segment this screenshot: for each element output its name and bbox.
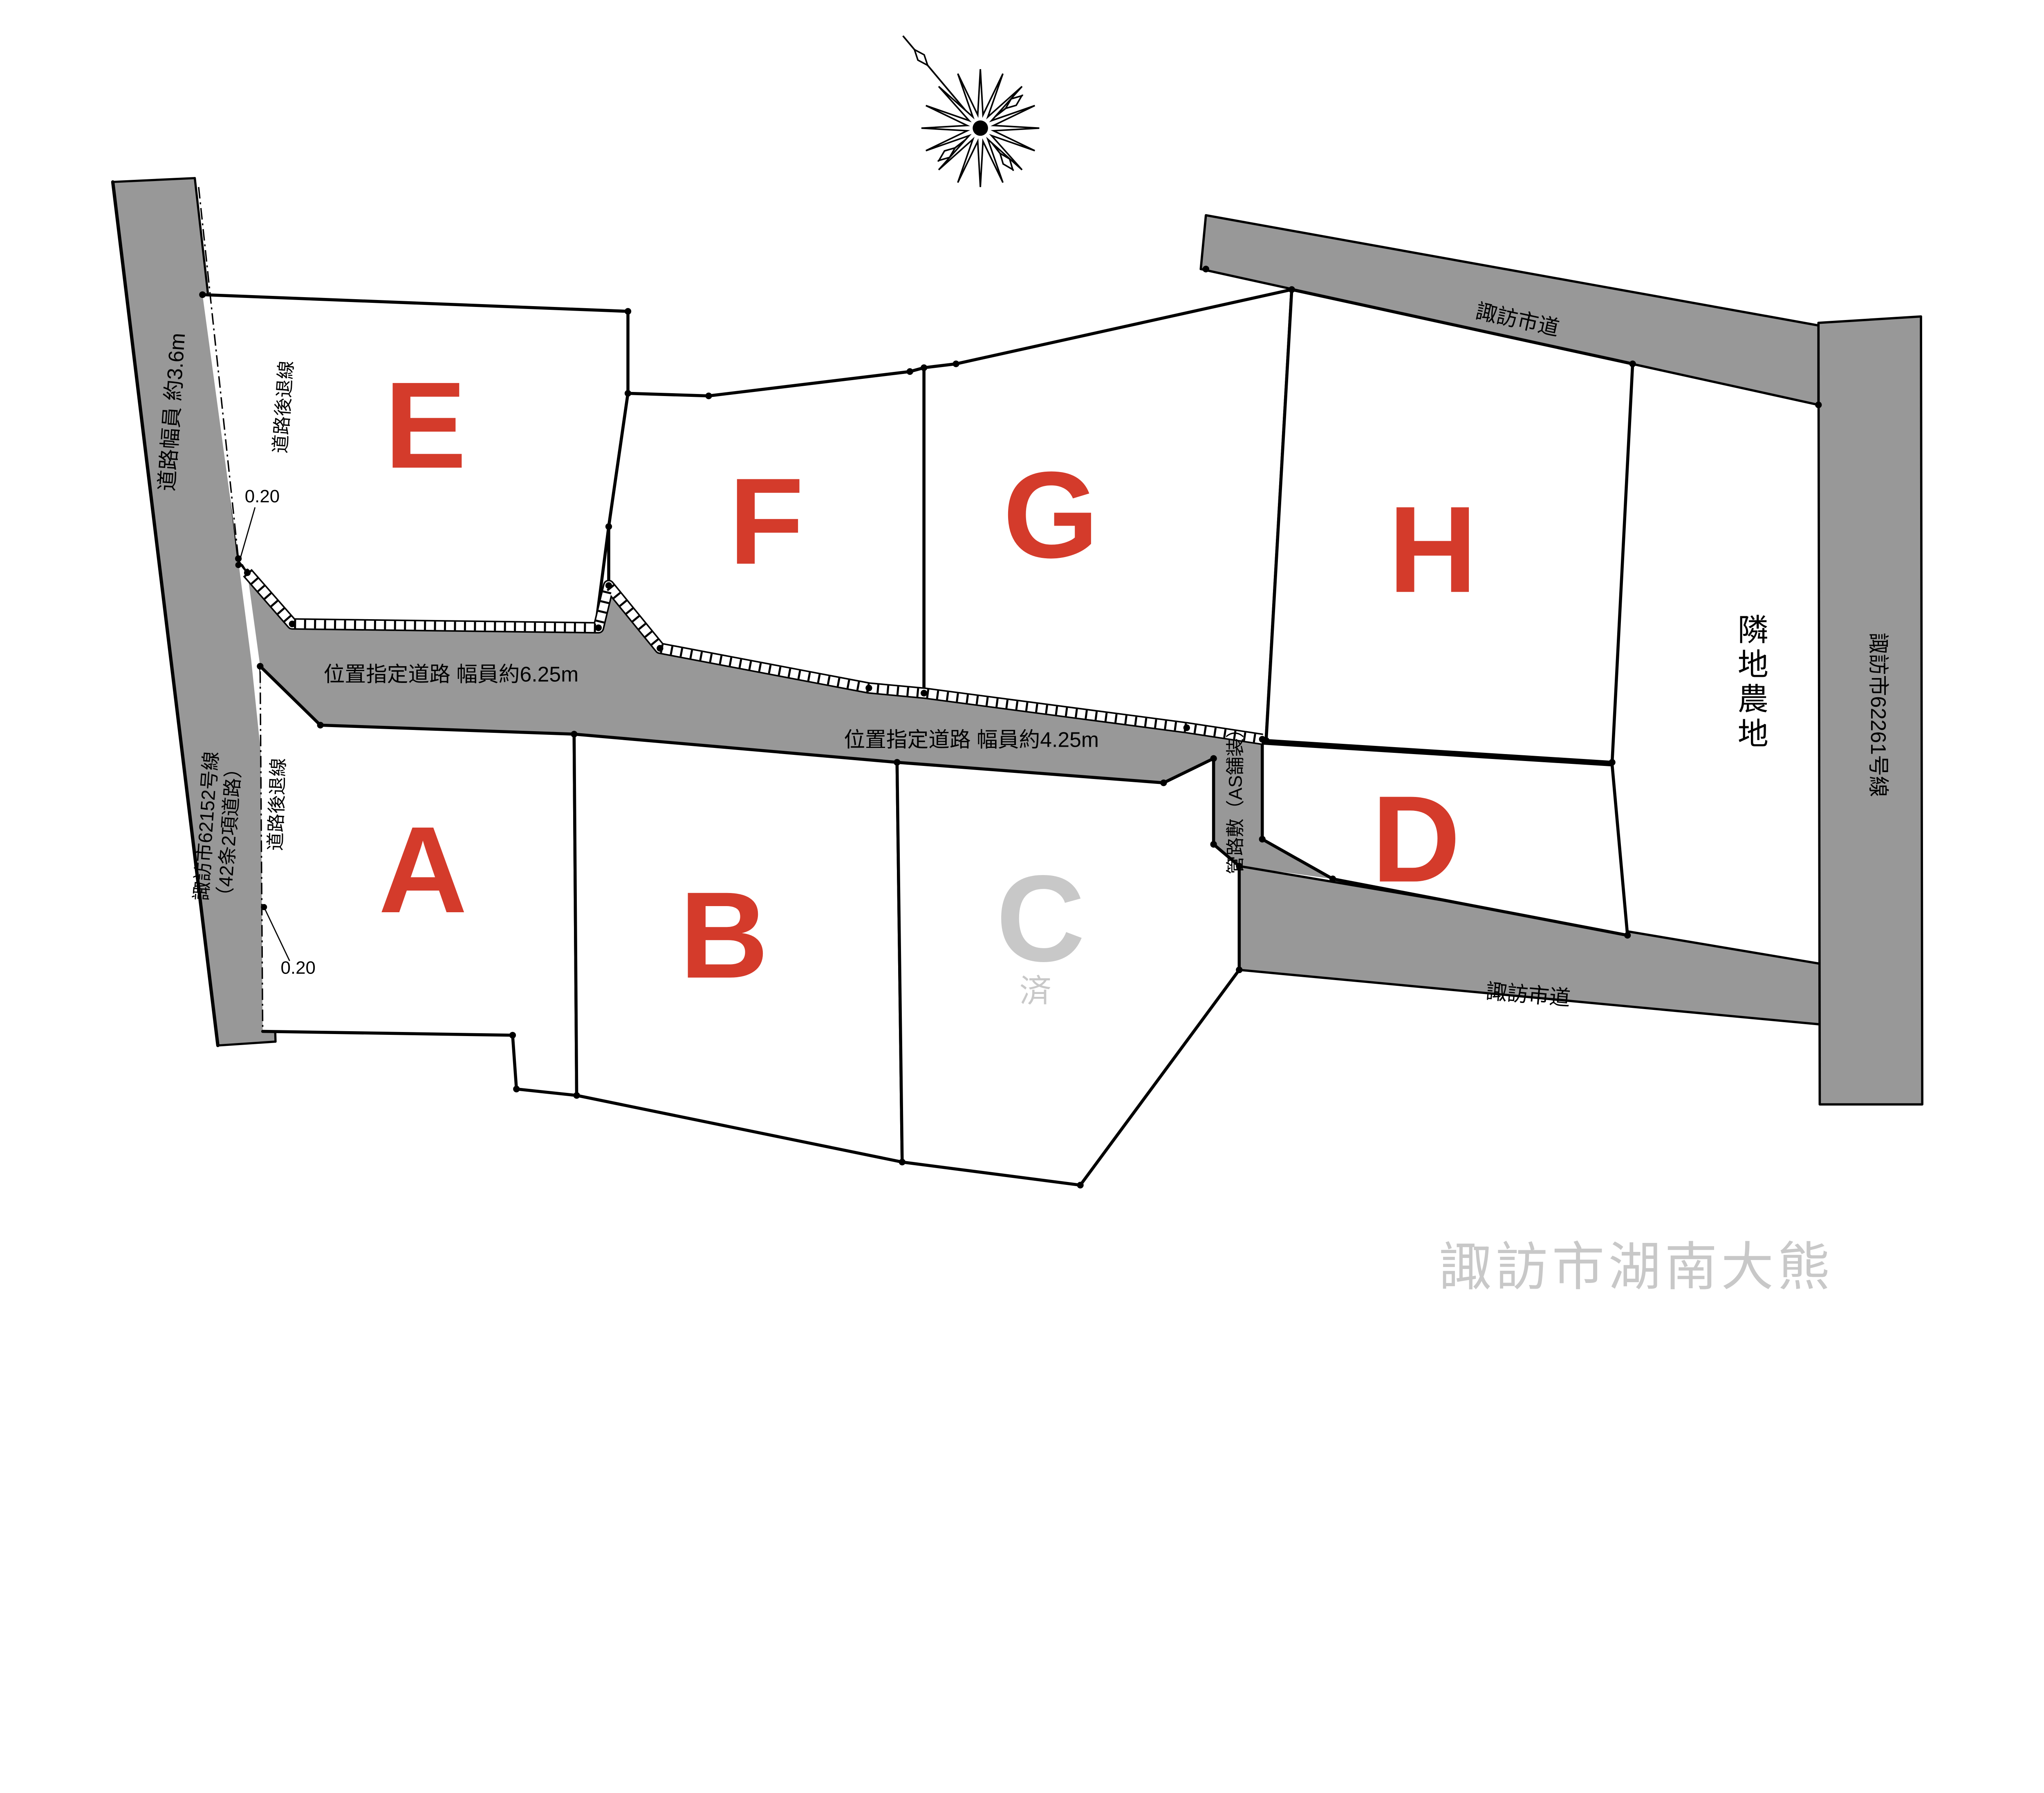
lot-D-label: D xyxy=(1372,770,1460,908)
lot-C-label: C xyxy=(996,850,1085,987)
farmland-char-4: 地 xyxy=(1738,716,1768,751)
compass-rose xyxy=(903,36,1040,187)
farmland-char-3: 農 xyxy=(1738,682,1768,716)
lot-H: H xyxy=(1266,289,1633,762)
area-title: 諏訪市湖南大熊 xyxy=(1439,1238,1833,1296)
lot-G-shape xyxy=(924,289,1292,739)
lot-B: B xyxy=(574,734,902,1162)
lot-E-label: E xyxy=(384,356,466,494)
offset-value-lower: 0.20 xyxy=(281,958,316,978)
lot-E: E xyxy=(202,295,628,625)
lot-F-label: F xyxy=(729,452,804,590)
setback-label-lower: 道路後退線 xyxy=(265,758,289,851)
lot-G: G xyxy=(924,289,1292,739)
road-425-label: 位置指定道路 幅員約4.25m xyxy=(844,728,1099,752)
lot-C: C 済 xyxy=(897,759,1239,1185)
farmland-label: 隣 地 農 地 xyxy=(1738,613,1768,751)
lot-H-label: H xyxy=(1388,481,1477,618)
lot-A-label: A xyxy=(379,801,467,938)
lot-B-label: B xyxy=(679,866,768,1004)
farmland-char-2: 地 xyxy=(1738,647,1768,682)
farmland-char-1: 隣 xyxy=(1738,613,1768,647)
lot-C-sold-mark: 済 xyxy=(1020,973,1051,1009)
right-road-label: 諏訪市62261号線 xyxy=(1867,633,1890,797)
pipe-strip-label: 管路敷（AS舗装） xyxy=(1225,719,1246,874)
lot-G-label: G xyxy=(1003,446,1098,584)
offset-value-upper: 0.20 xyxy=(245,486,280,506)
road-625-label: 位置指定道路 幅員約6.25m xyxy=(324,663,579,686)
site-plan-map: E F G H D A B C 済 xyxy=(0,0,2044,1406)
